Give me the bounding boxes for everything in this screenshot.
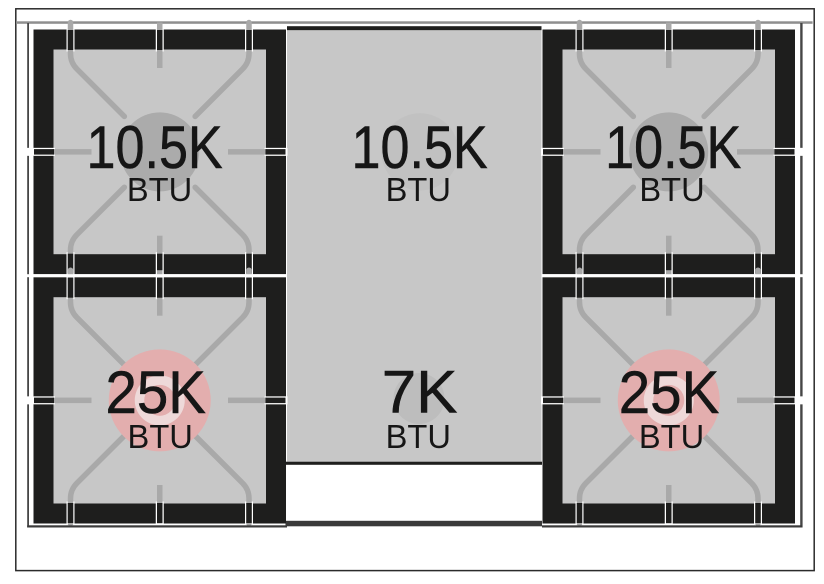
svg-text:BTU: BTU — [639, 418, 704, 455]
svg-text:7K: 7K — [382, 358, 458, 425]
svg-text:BTU: BTU — [128, 418, 193, 455]
svg-text:BTU: BTU — [639, 171, 704, 208]
svg-text:BTU: BTU — [386, 418, 451, 455]
svg-text:25K: 25K — [619, 359, 720, 426]
svg-text:25K: 25K — [105, 359, 206, 426]
svg-text:BTU: BTU — [386, 171, 451, 208]
svg-text:BTU: BTU — [127, 171, 192, 208]
